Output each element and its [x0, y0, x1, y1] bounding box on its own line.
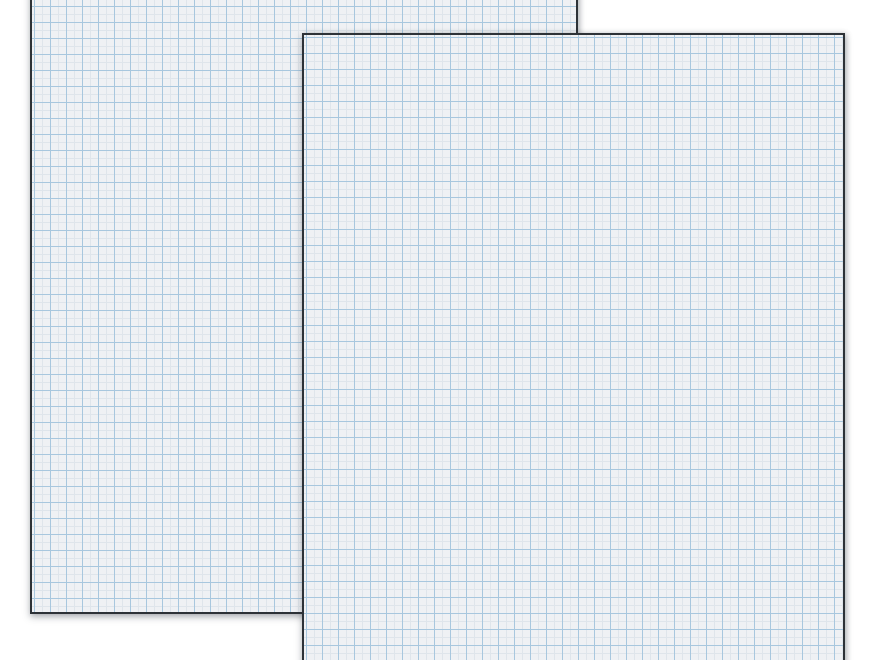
graph-paper-sheet-front	[302, 33, 845, 660]
graph-paper-scene	[0, 0, 880, 660]
